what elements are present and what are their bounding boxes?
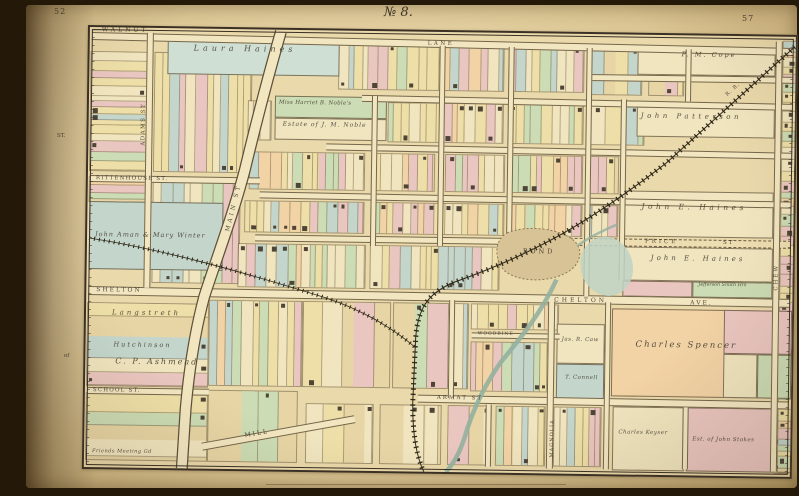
page-crease bbox=[266, 484, 566, 485]
railroad-branch-line bbox=[88, 238, 417, 348]
page-number-right: 57 bbox=[742, 14, 754, 23]
main-street-road bbox=[182, 30, 281, 469]
map-canvas: WALNUTLANERITTENHOUSE ST.PRICESTSHELTONC… bbox=[82, 25, 798, 479]
creek bbox=[446, 278, 557, 473]
margin-of: of bbox=[64, 353, 69, 359]
atlas-page: 52 57 № 8. WALNUTLANERITTENHOUSE ST.PRIC… bbox=[26, 5, 797, 488]
railroad-branch-ties bbox=[88, 238, 417, 348]
pond-shape bbox=[496, 228, 580, 281]
plate-title: № 8. bbox=[384, 5, 413, 20]
map-features-svg bbox=[84, 27, 796, 477]
page-number-left: 52 bbox=[54, 7, 66, 16]
margin-st: ST. bbox=[57, 133, 65, 139]
